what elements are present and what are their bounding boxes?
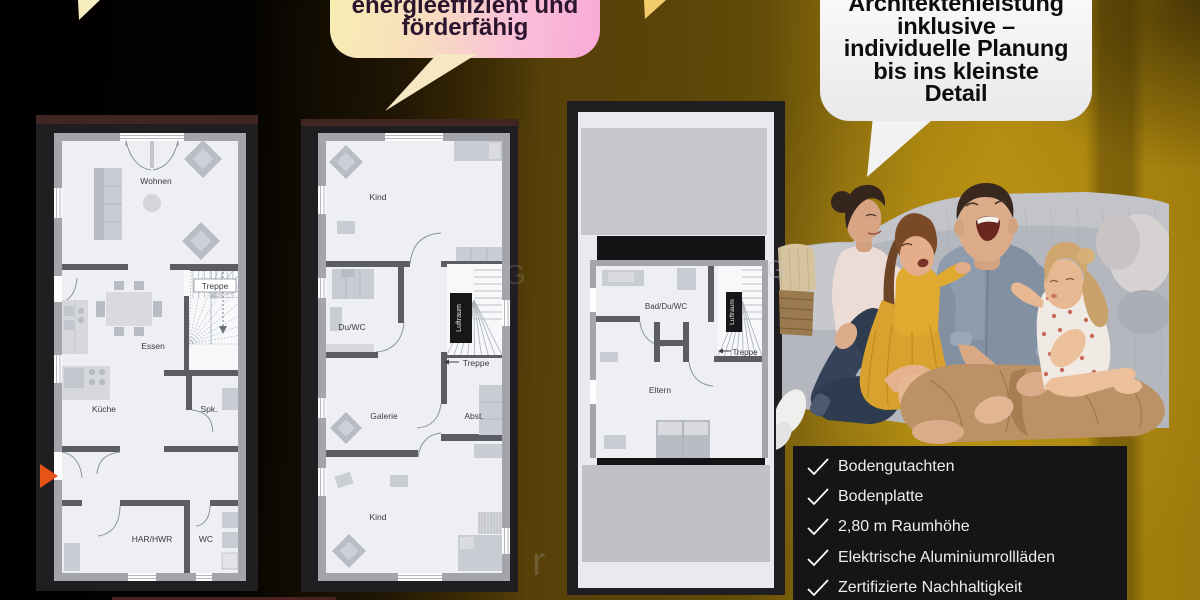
svg-text:Treppe: Treppe xyxy=(463,358,490,368)
svg-text:Abst.: Abst. xyxy=(464,411,483,421)
svg-text:HAR/HWR: HAR/HWR xyxy=(132,534,173,544)
svg-text:G: G xyxy=(504,259,526,290)
svg-text:WC: WC xyxy=(199,534,213,544)
svg-text:Treppe: Treppe xyxy=(732,348,758,357)
svg-text:Spk.: Spk. xyxy=(200,404,217,414)
svg-text:Wohnen: Wohnen xyxy=(140,176,172,186)
svg-text:Kind: Kind xyxy=(369,512,386,522)
svg-text:Eltern: Eltern xyxy=(649,385,671,395)
svg-text:Kind: Kind xyxy=(369,192,386,202)
svg-text:Treppe: Treppe xyxy=(202,281,229,291)
svg-text:Du/WC: Du/WC xyxy=(338,322,365,332)
svg-text:Luftraum: Luftraum xyxy=(456,304,463,332)
svg-text:r: r xyxy=(532,540,545,584)
svg-text:Luftraum: Luftraum xyxy=(729,299,736,325)
svg-text:Essen: Essen xyxy=(141,341,165,351)
svg-text:Küche: Küche xyxy=(92,404,116,414)
svg-text:G: G xyxy=(766,256,785,284)
svg-text:Galerie: Galerie xyxy=(370,411,398,421)
svg-text:Bad/Du/WC: Bad/Du/WC xyxy=(645,302,687,311)
